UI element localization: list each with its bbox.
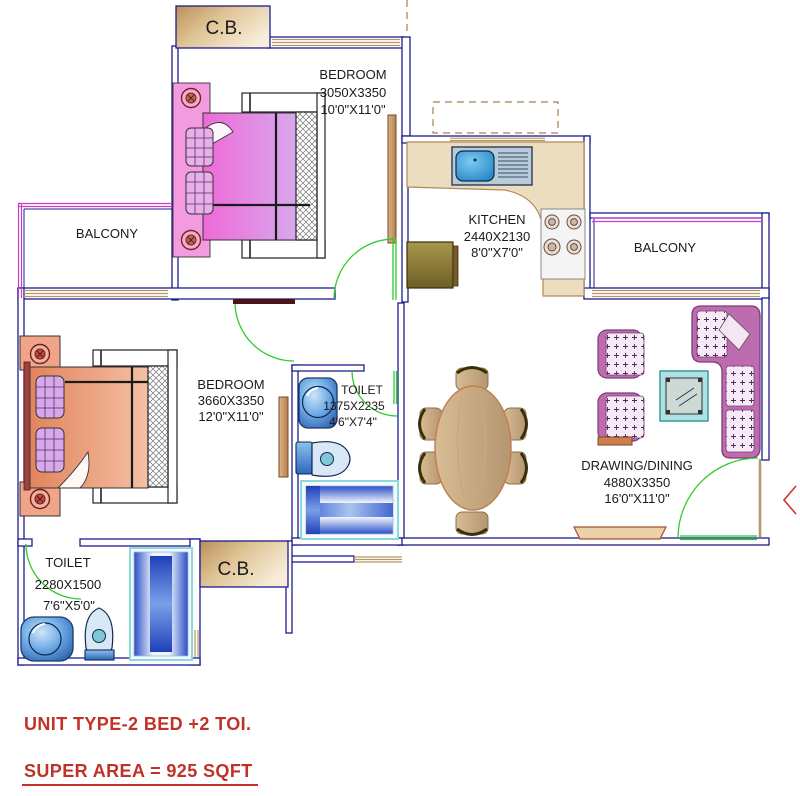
sink-drainboard bbox=[498, 153, 528, 177]
wall bbox=[18, 539, 32, 546]
bed-frame-rail bbox=[93, 350, 177, 366]
bedroom-top-label: BEDROOM bbox=[319, 67, 386, 82]
wardrobe-panel bbox=[388, 115, 396, 243]
dining-table bbox=[435, 386, 511, 510]
sink-drain-hole bbox=[474, 159, 477, 162]
corner-washbasin bbox=[21, 617, 73, 661]
bed-frame-rail bbox=[242, 240, 325, 258]
bedside-lamp bbox=[182, 231, 201, 250]
dining-chair bbox=[456, 512, 488, 535]
railing-balcony-left bbox=[18, 203, 172, 298]
wall bbox=[590, 213, 769, 218]
bedroom-left-label: BEDROOM bbox=[197, 377, 264, 392]
bedside-lamp bbox=[31, 345, 50, 364]
tv-unit bbox=[574, 527, 666, 539]
railing-balcony-right bbox=[592, 218, 762, 222]
window-niche bbox=[354, 557, 402, 562]
center-table bbox=[660, 371, 708, 421]
bed-frame-side bbox=[317, 93, 325, 258]
bedroom-left-size-mm: 3660X3350 bbox=[198, 393, 265, 408]
sofa-cushion bbox=[726, 410, 754, 452]
wc-toilet bbox=[85, 608, 114, 660]
burner-inner bbox=[571, 244, 578, 251]
bed-headboard-panel bbox=[24, 362, 30, 490]
balcony-left-label: BALCONY bbox=[76, 226, 138, 241]
bedside-lamp bbox=[182, 89, 201, 108]
kitchen-label: KITCHEN bbox=[468, 212, 525, 227]
balcony-left-inner-line bbox=[24, 209, 172, 288]
bedroom-top-size-mm: 3050X3350 bbox=[320, 85, 387, 100]
wall-shelf bbox=[598, 437, 632, 445]
bed-pillow bbox=[36, 428, 64, 472]
wall bbox=[292, 365, 364, 371]
entry-arrow-icon bbox=[784, 486, 796, 514]
bedroom-top-size-ft: 10'0"X11'0" bbox=[320, 102, 386, 117]
dashed-projections bbox=[407, 0, 558, 133]
wardrobe-panel bbox=[279, 397, 288, 477]
bed-left bbox=[20, 336, 288, 516]
super-area-text: SUPER AREA = 925 SQFT bbox=[24, 761, 253, 781]
door-arc-bedroom-top bbox=[334, 239, 394, 299]
wall bbox=[290, 556, 354, 562]
wall bbox=[80, 539, 200, 546]
toilet-bottom-size-mm: 2280X1500 bbox=[35, 577, 102, 592]
drawing-dining-label: DRAWING/DINING bbox=[581, 458, 692, 473]
bedside-lamp bbox=[31, 490, 50, 509]
cupboard-bottom-label: C.B. bbox=[218, 559, 255, 580]
bed-foot-hatch bbox=[148, 366, 168, 487]
bed-frame-rail bbox=[93, 487, 177, 503]
kitchen-stove bbox=[541, 209, 585, 279]
unit-type-text: UNIT TYPE-2 BED +2 TOI. bbox=[24, 714, 251, 734]
bed-foot-hatch bbox=[296, 112, 317, 240]
toilet-middle-label: TOILET bbox=[341, 383, 383, 397]
floorplan-page: C.B. C.B. BEDROOM 3050X3350 10'0"X11'0" … bbox=[0, 0, 800, 796]
burner-inner bbox=[571, 219, 578, 226]
toilet-middle-size-ft: 4'6"X7'4" bbox=[329, 415, 377, 429]
door-leaf-bedroom-left bbox=[233, 299, 295, 304]
sofa-cushion bbox=[726, 366, 754, 406]
floorplan-drawing: C.B. C.B. BEDROOM 3050X3350 10'0"X11'0" … bbox=[0, 0, 800, 796]
fridge-handle bbox=[453, 246, 458, 286]
armchair bbox=[598, 393, 644, 441]
bed-pillow bbox=[186, 172, 213, 214]
bed-pillow bbox=[36, 376, 64, 418]
cupboard-top-label: C.B. bbox=[206, 18, 243, 39]
armchair bbox=[598, 330, 644, 378]
kitchen-sink bbox=[452, 147, 532, 185]
bedroom-left-size-ft: 12'0"X11'0" bbox=[198, 409, 264, 424]
toilet-bottom-size-ft: 7'6"X5'0" bbox=[43, 598, 95, 613]
bed-frame-side bbox=[168, 350, 177, 503]
door-leaf-bedroom-top bbox=[393, 238, 396, 300]
kitchen-size-mm: 2440X2130 bbox=[464, 229, 531, 244]
drawing-dining-size-mm: 4880X3350 bbox=[604, 475, 671, 490]
kitchen-fridge bbox=[407, 242, 458, 288]
balcony-right-label: BALCONY bbox=[634, 240, 696, 255]
kitchen-size-ft: 8'0"X7'0" bbox=[471, 245, 523, 260]
wall bbox=[402, 37, 410, 137]
burner-inner bbox=[549, 219, 556, 226]
wall bbox=[762, 213, 769, 300]
door-leaf-toilet-middle bbox=[394, 371, 397, 404]
sink-bowl bbox=[456, 151, 494, 181]
burner-inner bbox=[548, 243, 556, 251]
super-area-underline bbox=[22, 784, 258, 786]
bathtub bbox=[301, 481, 398, 539]
wall-right-outer bbox=[762, 298, 769, 460]
door-arc-bedroom-left bbox=[235, 302, 294, 361]
footer-annotations: UNIT TYPE-2 BED +2 TOI. SUPER AREA = 925… bbox=[22, 714, 258, 786]
shower-tub bbox=[130, 548, 192, 660]
toilet-middle-size-mm: 1375X2235 bbox=[323, 399, 385, 413]
dining-set bbox=[420, 368, 527, 535]
wc-toilet bbox=[296, 442, 350, 477]
fridge-body bbox=[407, 242, 453, 288]
bed-pillow bbox=[186, 128, 213, 166]
bed-frame-rail bbox=[242, 93, 325, 112]
toilet-bottom-label: TOILET bbox=[45, 555, 90, 570]
drawing-dining-size-ft: 16'0"X11'0" bbox=[604, 491, 670, 506]
dashed-projection-box bbox=[433, 102, 558, 133]
